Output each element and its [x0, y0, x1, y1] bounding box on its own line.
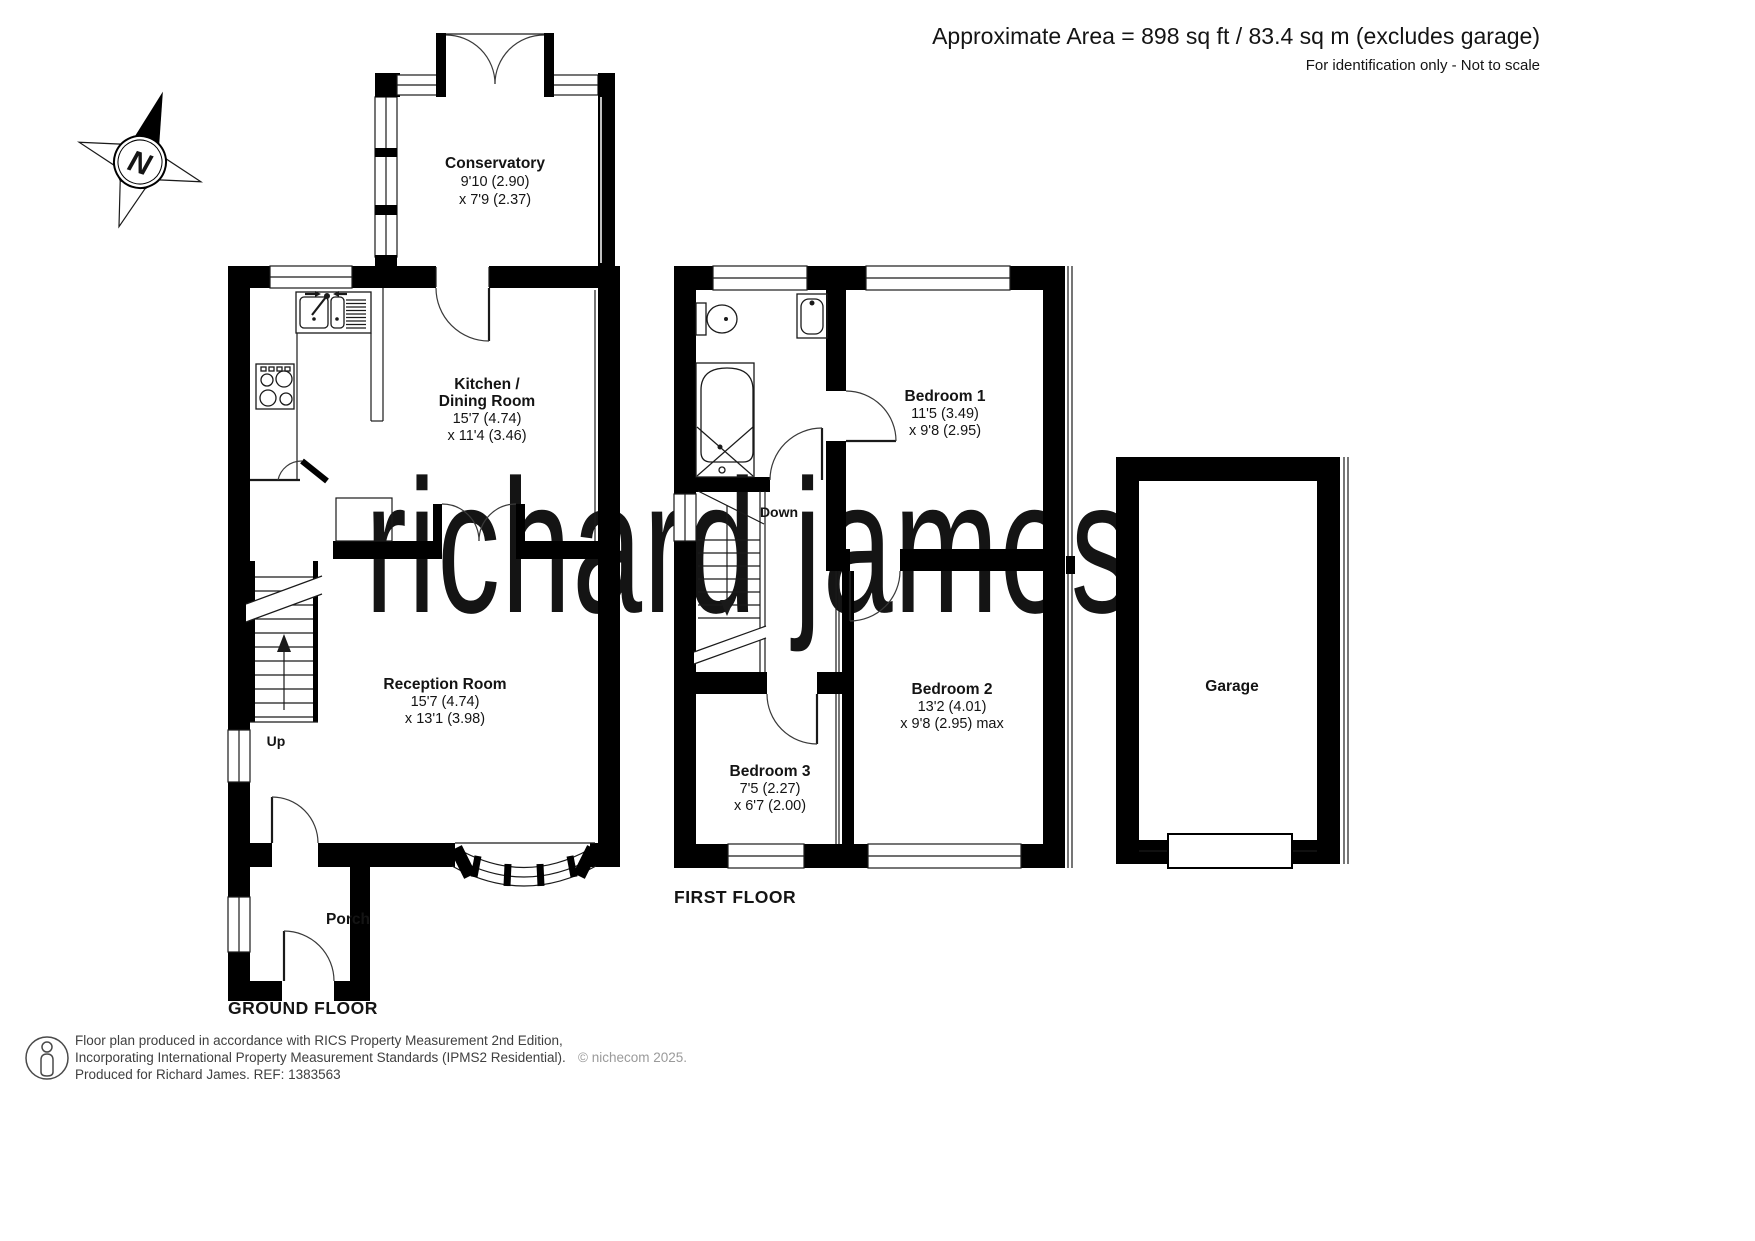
first-floor-label: FIRST FLOOR [674, 887, 796, 907]
svg-text:Bedroom 3: Bedroom 3 [730, 763, 811, 780]
svg-text:Kitchen /: Kitchen / [454, 376, 520, 393]
porch-reception-door [272, 797, 318, 843]
bedroom3-window [728, 844, 804, 868]
svg-text:9'10 (2.90): 9'10 (2.90) [461, 174, 530, 190]
kitchen-hob [256, 364, 294, 409]
floorplan-canvas: richard james [0, 0, 1755, 1241]
floorplan-page: richard james [0, 0, 1755, 1241]
stairs-up-label: Up [267, 733, 286, 749]
svg-text:7'5 (2.27): 7'5 (2.27) [740, 781, 801, 797]
bedroom3-label: Bedroom 3 7'5 (2.27) x 6'7 (2.00) [730, 763, 811, 814]
svg-text:13'2 (4.01): 13'2 (4.01) [918, 699, 987, 715]
svg-text:15'7 (4.74): 15'7 (4.74) [411, 694, 480, 710]
footer-copyright: © nichecom 2025. [578, 1050, 687, 1065]
svg-text:x 11'4 (3.46): x 11'4 (3.46) [447, 428, 526, 444]
approximate-area-text: Approximate Area = 898 sq ft / 83.4 sq m… [932, 23, 1540, 49]
bedroom2-label: Bedroom 2 13'2 (4.01) x 9'8 (2.95) max [900, 681, 1004, 732]
person-icon [26, 1037, 68, 1079]
bedroom1-window [866, 266, 1010, 290]
garage-plan: Garage [1116, 457, 1348, 868]
reception-side-window [228, 730, 250, 782]
drainer-hatch [346, 300, 366, 328]
porch-label: Porch [326, 911, 370, 928]
conservatory-kitchen-door [436, 267, 489, 341]
ground-floor-label: GROUND FLOOR [228, 998, 378, 1018]
svg-text:Bedroom 2: Bedroom 2 [912, 681, 993, 698]
conservatory-structure [375, 33, 615, 267]
stairs-ground: Up [246, 561, 322, 749]
svg-text:Dining Room: Dining Room [439, 393, 535, 410]
kitchen-label: Kitchen / Dining Room 15'7 (4.74) x 11'4… [439, 376, 535, 444]
basin [797, 294, 827, 338]
svg-text:15'7 (4.74): 15'7 (4.74) [453, 411, 522, 427]
bedroom2-window [868, 844, 1021, 868]
conservatory-label: Conservatory 9'10 (2.90) x 7'9 (2.37) [445, 155, 545, 208]
reception-label: Reception Room 15'7 (4.74) x 13'1 (3.98) [383, 676, 506, 727]
porch-window [228, 897, 250, 952]
landing-window [674, 494, 696, 541]
svg-text:11'5 (3.49): 11'5 (3.49) [911, 406, 979, 422]
svg-text:x 7'9 (2.37): x 7'9 (2.37) [459, 192, 531, 208]
bedroom1-label: Bedroom 1 11'5 (3.49) x 9'8 (2.95) [905, 388, 986, 439]
garage-walls [1116, 457, 1348, 864]
footer-line2: Incorporating International Property Mea… [75, 1050, 566, 1065]
svg-text:x 9'8 (2.95): x 9'8 (2.95) [909, 423, 981, 439]
garage-label: Garage [1205, 678, 1259, 695]
svg-text:Bedroom 1: Bedroom 1 [905, 388, 986, 405]
header: Approximate Area = 898 sq ft / 83.4 sq m… [932, 23, 1540, 74]
footer: Floor plan produced in accordance with R… [26, 1033, 687, 1082]
footer-line3: Produced for Richard James. REF: 1383563 [75, 1067, 341, 1082]
footer-line1: Floor plan produced in accordance with R… [75, 1033, 563, 1048]
french-doors [446, 35, 544, 84]
svg-text:Reception Room: Reception Room [383, 676, 506, 693]
svg-text:Conservatory: Conservatory [445, 155, 545, 172]
toilet [696, 303, 737, 335]
bedroom3-door [767, 694, 817, 744]
bedroom1-door [846, 391, 896, 441]
bay-window [452, 843, 596, 886]
front-door [284, 931, 334, 981]
svg-text:x 13'1 (3.98): x 13'1 (3.98) [405, 711, 485, 727]
up-arrow-icon [277, 634, 291, 652]
compass-icon: N [58, 72, 224, 247]
identification-note-text: For identification only - Not to scale [1306, 57, 1540, 74]
svg-text:x 6'7 (2.00): x 6'7 (2.00) [734, 798, 806, 814]
kitchen-sink [296, 291, 371, 333]
svg-text:x 9'8 (2.95) max: x 9'8 (2.95) max [900, 716, 1004, 732]
stairs-down-label: Down [760, 504, 798, 520]
kitchen-window [270, 266, 352, 288]
bathroom-window [713, 266, 807, 290]
